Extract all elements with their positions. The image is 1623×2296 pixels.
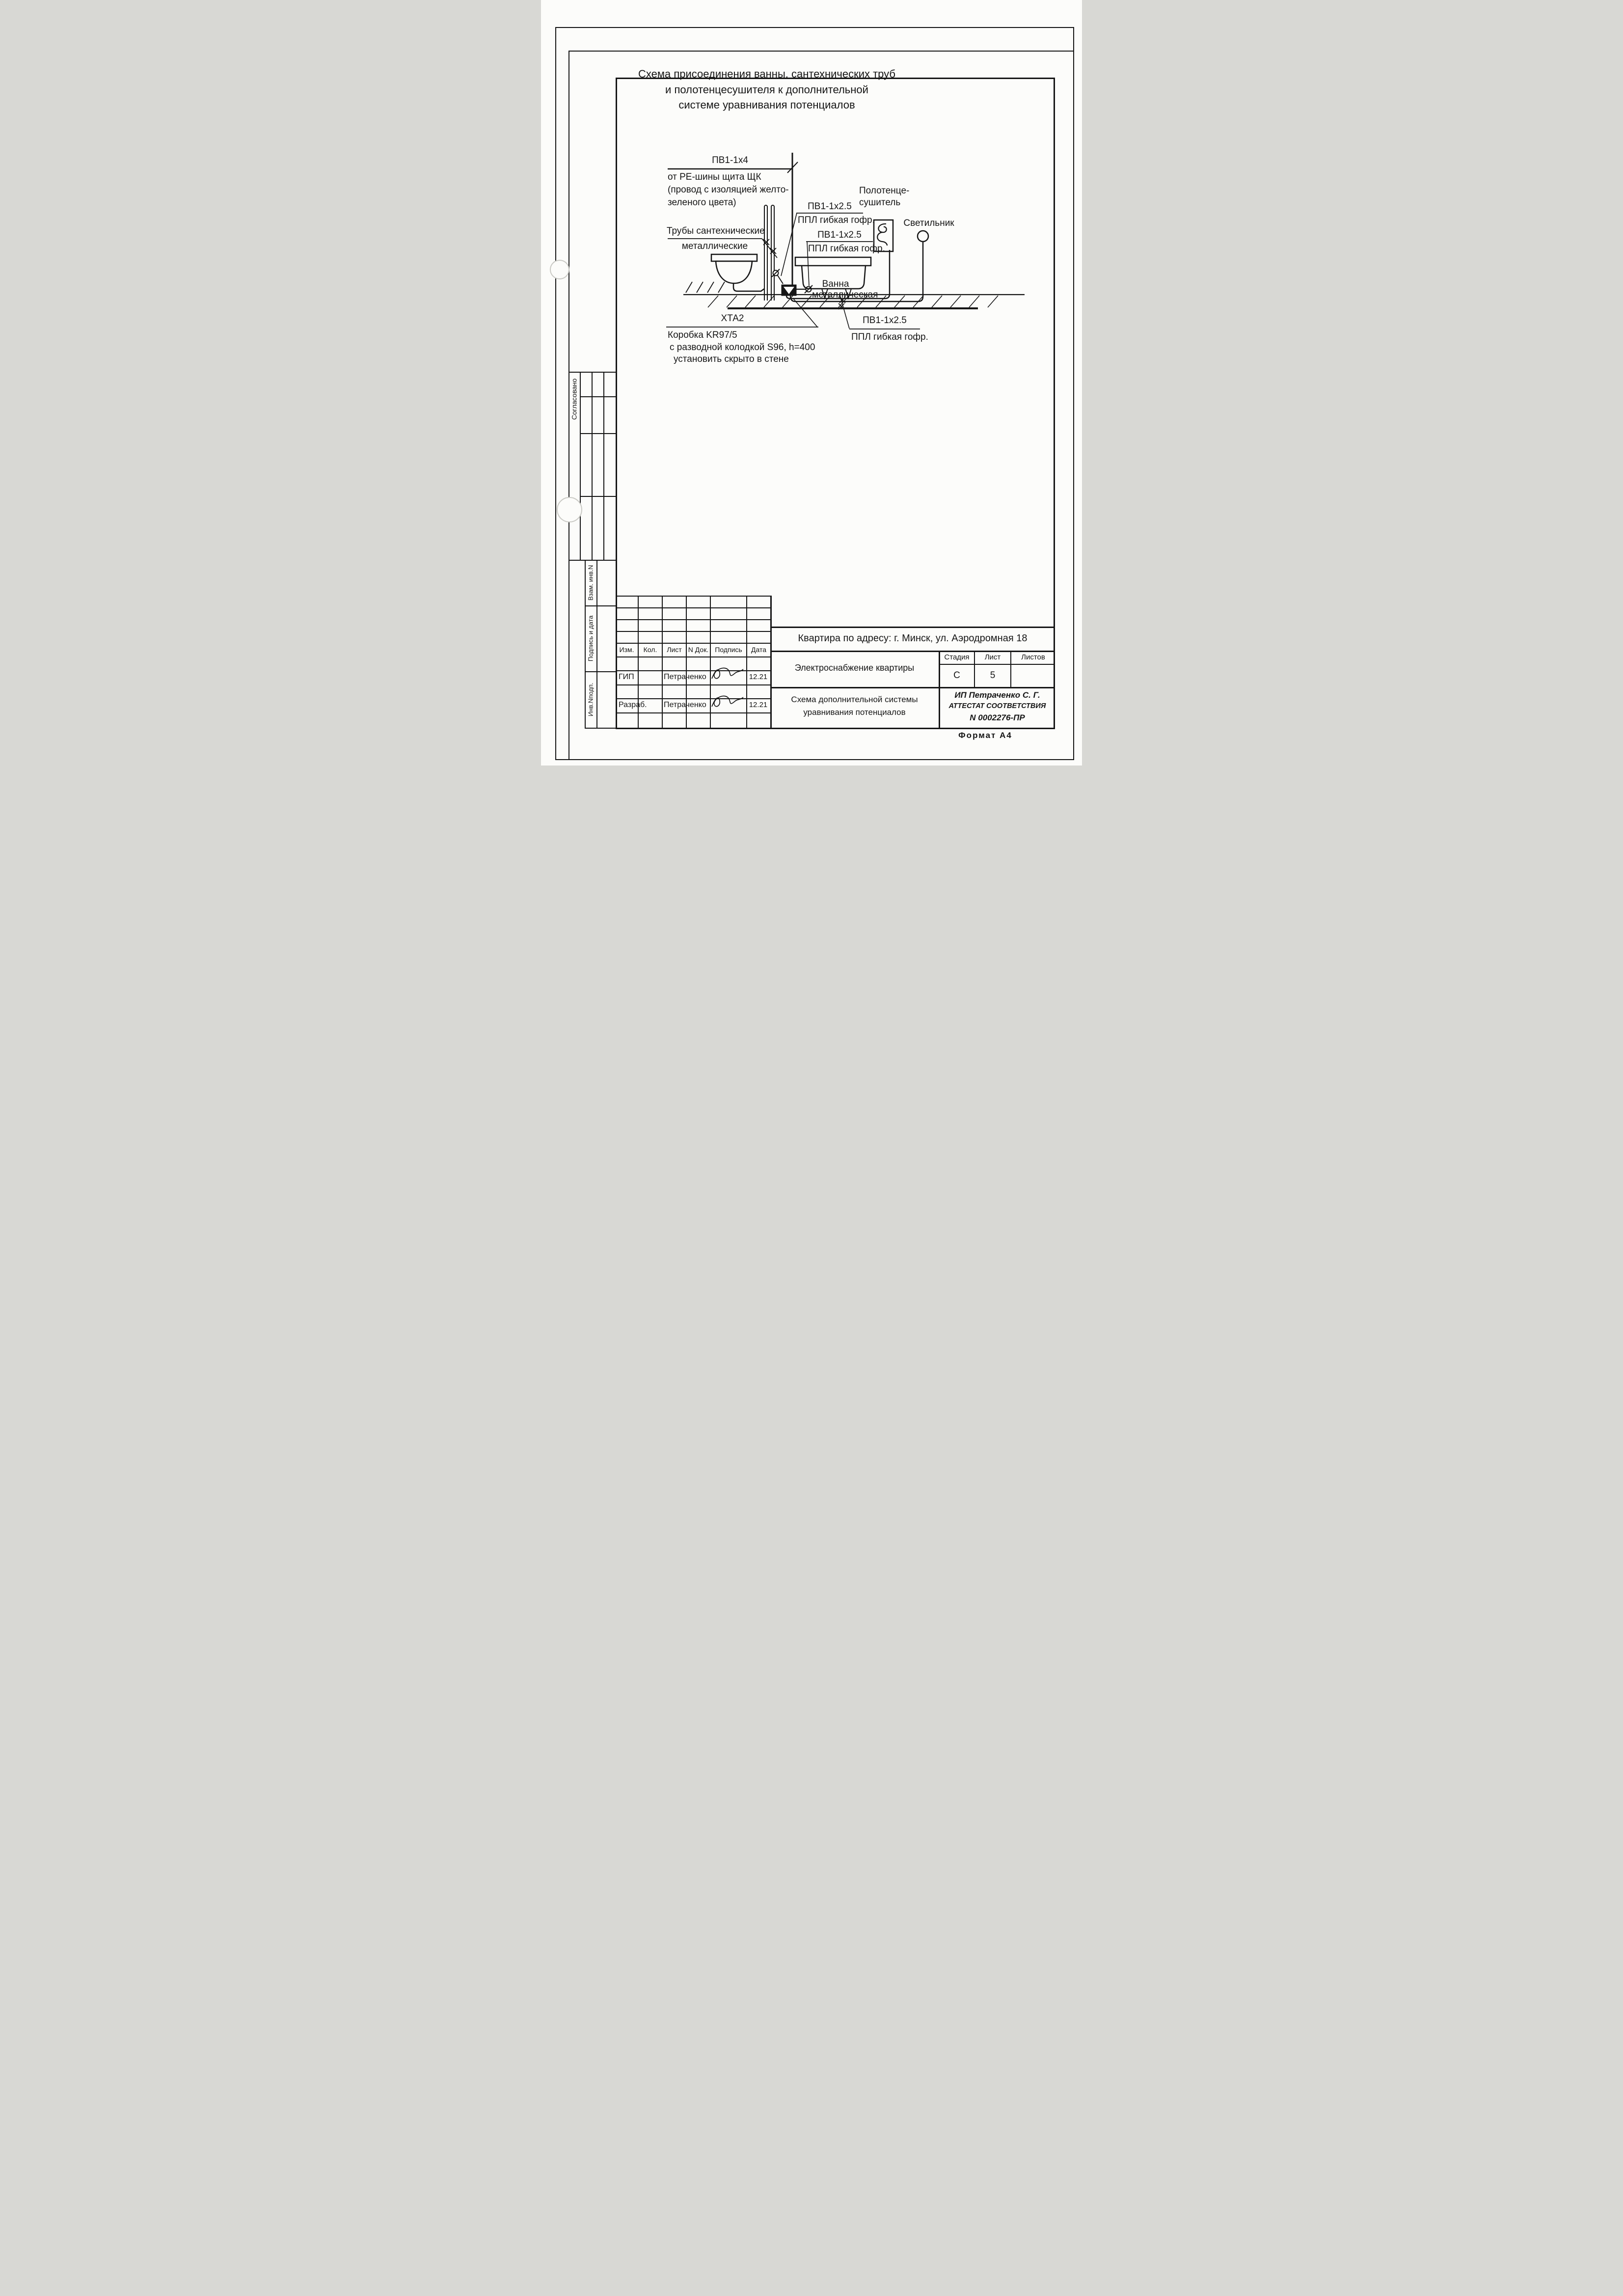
- light-circle-icon: [918, 231, 928, 242]
- agreed-col-line: [603, 372, 604, 561]
- towel-coil-icon: [877, 224, 887, 246]
- frame-right: [1054, 78, 1055, 729]
- bathtub-rim: [795, 257, 871, 266]
- row-razrab-role: Разраб.: [619, 701, 647, 710]
- drawing-title-line1: Схема присоединения ванны, сантехнически…: [629, 68, 904, 81]
- bath-label-line1: Ванна: [816, 279, 855, 290]
- outer-border-bottom: [555, 759, 1074, 760]
- col-header-izm: Изм.: [616, 646, 638, 654]
- doc-name-line2: уравнивания потенциалов: [770, 708, 939, 717]
- riser-wire-label: ПВ1-1х4: [686, 155, 774, 166]
- format-note: Формат А4: [944, 731, 1027, 740]
- doc-name-line1: Схема дополнительной системы: [770, 695, 939, 705]
- margin-line-top: [568, 51, 1074, 52]
- row-razrab-date: 12.21: [746, 701, 770, 709]
- row-gip-role: ГИП: [619, 673, 634, 682]
- sheet-label: Лист: [975, 653, 1010, 661]
- box-note-line2: с разводной колодкой S96, h=400: [670, 342, 815, 353]
- col-header-ndoc: N Док.: [687, 646, 710, 654]
- outer-border-right: [1073, 27, 1074, 760]
- wire-c-note: ППЛ гибкая гофр.: [851, 332, 928, 343]
- towel-dryer-label-line2: сушитель: [859, 197, 900, 208]
- wire-a-note: ППЛ гибкая гофр.: [798, 215, 875, 226]
- stage-header-line: [939, 664, 1055, 665]
- stage-value: С: [940, 670, 974, 681]
- drawing-title-line2: и полотенцесушителя к дополнительной: [629, 83, 904, 96]
- frame-bottom: [616, 728, 1055, 729]
- row-gip-name: Петраченко: [664, 673, 706, 682]
- col-header-kol: Кол.: [639, 646, 662, 654]
- row-gip-date: 12.21: [746, 673, 770, 681]
- drawing-title-line3: системе уравнивания потенциалов: [629, 99, 904, 111]
- block-row-line: [585, 728, 616, 729]
- col-header-data: Дата: [747, 646, 770, 654]
- pipes-label-line1: Трубы сантехнические: [667, 226, 763, 237]
- junction-box: [782, 285, 796, 296]
- col-header-list: Лист: [663, 646, 686, 654]
- pe-bus-note-line2: (провод с изоляцией желто-: [668, 185, 789, 195]
- stamp-line1: ИП Петраченко С. Г.: [940, 690, 1055, 700]
- pe-bus-note-line3: зеленого цвета): [668, 197, 736, 208]
- revtable-col: [710, 596, 711, 728]
- col-header-podpis: Подпись: [711, 646, 746, 654]
- address-cell-top: [770, 627, 1055, 628]
- agreed-row-line: [580, 433, 616, 434]
- stamp-line3: N 0002276-ПР: [940, 713, 1055, 723]
- wire-b-note: ППЛ гибкая гофр.: [808, 244, 885, 254]
- sidebar-label-podpis: Подпись и дата: [585, 605, 596, 671]
- drawing-sheet: Схема присоединения ванны, сантехнически…: [541, 0, 1082, 765]
- sidebar-label-vzam: Взам. инв.N: [585, 560, 596, 605]
- pipe-connection-icon: [772, 269, 780, 277]
- sidebar-label-inv: Инв.Nподп.: [585, 671, 596, 728]
- box-note-line1: Коробка KR97/5: [668, 330, 737, 341]
- pipes-label-line2: металлические: [667, 241, 763, 252]
- punch-hole: [550, 260, 569, 279]
- address-text: Квартира по адресу: г. Минск, ул. Аэродр…: [770, 633, 1055, 644]
- floor-slash-marks: [686, 282, 725, 293]
- agreed-row-line: [580, 496, 616, 497]
- sheets-label: Листов: [1011, 653, 1055, 661]
- sink-drain: [733, 283, 764, 291]
- row-razrab-name: Петраченко: [664, 701, 706, 710]
- wire-c-label: ПВ1-1х2.5: [850, 315, 919, 326]
- wire-a-label: ПВ1-1х2.5: [796, 201, 863, 212]
- sink: [711, 254, 764, 291]
- stage-label: Стадия: [940, 653, 974, 661]
- stamp-line2: АТТЕСТАТ СООТВЕТСТВИЯ: [940, 702, 1055, 710]
- agreed-col-line: [592, 372, 593, 561]
- revtable-col: [662, 596, 663, 728]
- agreed-col-line: [580, 372, 581, 561]
- bath-connection-icon: [805, 285, 812, 293]
- sanitary-pipes: [764, 205, 774, 301]
- riser-break-icon: [787, 162, 798, 173]
- agreed-row-line: [580, 396, 616, 397]
- project-name: Электроснабжение квартиры: [770, 663, 939, 673]
- light-label: Светильник: [892, 218, 966, 229]
- bath-label-line2: металлическая: [812, 290, 878, 301]
- box-note-line3: установить скрыто в стене: [674, 354, 789, 365]
- pe-bus-note-line1: от PE-шины щита ЩК: [668, 172, 761, 183]
- outer-border-top: [555, 27, 1074, 28]
- sheet-value: 5: [975, 670, 1010, 681]
- outer-border-left: [555, 27, 556, 760]
- signature-gip: [712, 668, 743, 679]
- sink-bowl: [716, 261, 752, 283]
- address-cell-bottom: [770, 651, 1055, 652]
- sink-counter: [711, 254, 757, 261]
- doc-row-line: [770, 687, 1055, 688]
- pipe-connection-link: [778, 275, 783, 284]
- wire-a-leader: [781, 213, 797, 276]
- signature-razrab: [712, 696, 743, 707]
- box-tag-label: ХТА2: [703, 313, 762, 324]
- box-tag-leader: [793, 298, 817, 327]
- sidebar-label-agreed: Согласовано: [568, 372, 580, 560]
- pipe-cross-mark: [763, 239, 776, 254]
- wire-b-label: ПВ1-1х2.5: [806, 230, 873, 241]
- vzam-block-divider: [596, 560, 597, 728]
- towel-dryer-label-line1: Полотенце-: [859, 186, 909, 196]
- pipes-leader: [762, 239, 777, 258]
- junction-box-triangle-icon: [784, 287, 794, 294]
